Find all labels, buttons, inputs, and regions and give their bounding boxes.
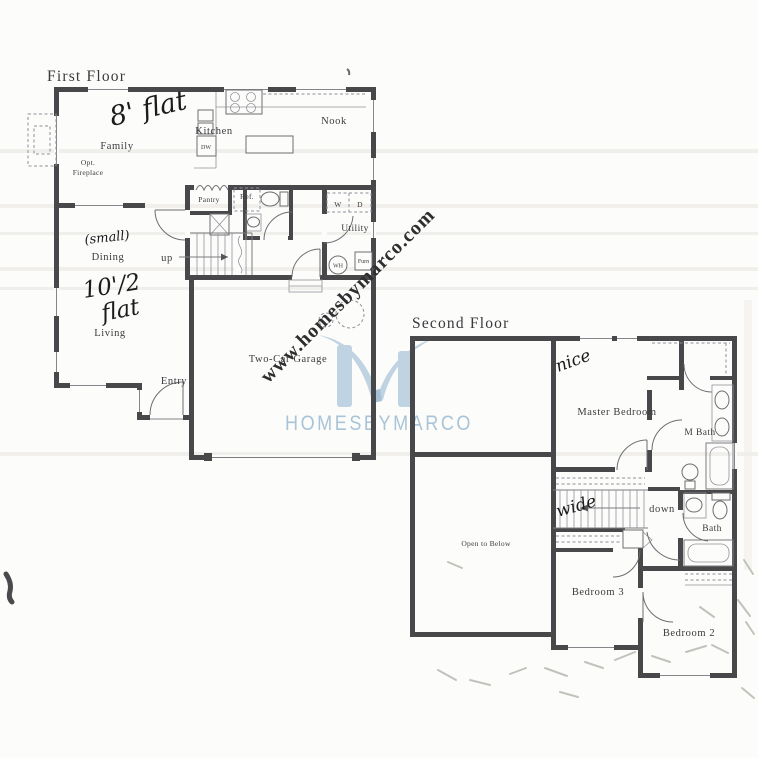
under-stair-closet	[623, 530, 643, 548]
toilet	[261, 192, 279, 206]
optional-fireplace: Opt. Fireplace	[28, 114, 104, 177]
bedroom3-door-arc	[613, 550, 640, 577]
open-to-below-label: Open to Below	[461, 539, 511, 548]
ref-label: Ref.	[240, 192, 254, 201]
second-floor-title: Second Floor	[412, 315, 510, 332]
garage-entry-door-arc	[292, 249, 320, 277]
powder-sink	[248, 217, 260, 227]
kitchen-sink	[198, 110, 213, 121]
down-label: down	[649, 504, 675, 515]
up-label: up	[161, 253, 173, 264]
washer-label: W	[334, 200, 342, 209]
mbath-sink-2	[715, 418, 729, 436]
water-heater-label: WH	[333, 264, 344, 270]
kitchen-island	[246, 136, 293, 153]
opt-fireplace-label-2: Fireplace	[73, 168, 104, 177]
bath-sink	[686, 498, 702, 512]
entry-label: Entry	[161, 376, 187, 387]
hall-closet-door-arc	[647, 532, 680, 560]
brand-watermark-text: HOMESBYMARCO	[285, 412, 473, 435]
dining-label: Dining	[92, 252, 125, 263]
bath-label: Bath	[702, 524, 722, 534]
living-label: Living	[94, 328, 126, 339]
utility-label: Utility	[341, 224, 369, 234]
first-floor-plan: First Floor	[28, 68, 376, 461]
pantry-label: Pantry	[198, 195, 219, 204]
bath-toilet	[713, 501, 727, 519]
second-floor-plan: Second Floor	[410, 315, 737, 678]
handwriting-nice: nice	[553, 346, 594, 377]
mbath-toilet	[682, 464, 698, 480]
handwriting-wide: wide	[554, 491, 599, 522]
first-floor-title: First Floor	[47, 68, 126, 85]
up-arrow-head	[221, 254, 228, 261]
mbath-sink-1	[715, 391, 729, 409]
handwriting-8ft-flat: 8' flat	[107, 85, 190, 133]
bedroom2-door-arc	[643, 592, 673, 622]
bedroom2-label: Bedroom 2	[663, 628, 715, 639]
master-bath-fixtures	[617, 385, 733, 489]
dryer-label: D	[357, 200, 363, 209]
dining-door-arc	[155, 210, 185, 240]
powder-door-arc	[264, 212, 292, 240]
floor-plan-scan: HOMESBYMARCO First Floor	[0, 0, 758, 758]
dishwasher-label: DW	[201, 145, 211, 151]
opt-fireplace-label-1: Opt.	[81, 158, 95, 167]
m-bath-label: M Bath	[684, 428, 715, 438]
bedroom-doors	[613, 550, 732, 622]
handwriting-small: (small)	[84, 228, 131, 248]
nook-label: Nook	[321, 116, 347, 127]
floor-plan-drawing: HOMESBYMARCO First Floor	[0, 0, 758, 758]
master-bedroom-label: Master Bedroom	[577, 407, 656, 418]
kitchen-label: Kitchen	[195, 126, 233, 137]
toilet-tank	[280, 192, 288, 206]
mbath-door-arc	[652, 420, 682, 450]
family-label: Family	[100, 141, 134, 152]
bedroom3-label: Bedroom 3	[572, 587, 624, 598]
